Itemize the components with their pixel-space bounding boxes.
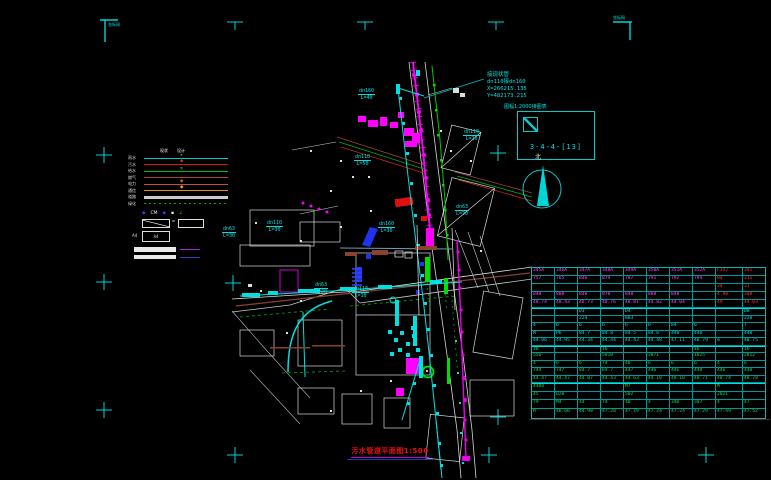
table-cell [601, 384, 624, 391]
table-cell: 44.04 [670, 300, 693, 307]
table-cell: 84.5 [624, 331, 647, 338]
table-cell: 2812 [743, 353, 765, 359]
table-cell [578, 347, 601, 352]
frame-note-top-right: 坐标网 [613, 15, 625, 21]
legend-blue-line [180, 257, 200, 258]
table-cell: 6 [647, 361, 670, 367]
legend-item-line [144, 177, 228, 178]
table-underline [529, 419, 770, 420]
title-block[interactable]: 污水管道平面图1:500 [340, 446, 440, 460]
table-cell: 446 [670, 368, 693, 374]
table-cell: 47.28 [601, 409, 624, 418]
table-cell: 350A [647, 268, 670, 275]
table-cell: 888 [647, 292, 670, 299]
table-row: 48.7448.4348.7348.7648.8144.8244.044944.… [532, 300, 765, 308]
table-row: 345A346A347A348A349A350A351A352AF342341 [532, 268, 765, 276]
table-cell: 352A [693, 268, 716, 275]
sheet-caption: 图幅1:2000接图表 [504, 103, 547, 110]
table-cell: 387 [693, 400, 716, 408]
table-cell [693, 300, 716, 307]
table-cell: 6 [647, 323, 670, 330]
table-cell: 48.43 [555, 300, 578, 307]
table-cell: M4 [555, 400, 578, 408]
table-cell: 348A [601, 268, 624, 275]
pipe-label-dn110-20[interactable]: dn110 L=20 [463, 129, 480, 142]
legend-headers: 现状 设计 [128, 147, 228, 155]
table-cell: M7 [624, 384, 647, 391]
table-row: 5565810387118252812 [532, 353, 765, 360]
table-cell: 7 [743, 323, 765, 330]
pipe-label-dn110-50[interactable]: dn110 L=50 [354, 154, 371, 167]
table-cell: 40 [624, 361, 647, 367]
table-cell [716, 309, 743, 315]
legend-symbol: ∠ [179, 211, 183, 216]
table-cell: 3871 [647, 353, 670, 359]
table-cell: 6 [578, 323, 601, 330]
table-cell: 4 [716, 361, 743, 367]
table-cell: 787 [624, 276, 647, 283]
table-cell [532, 316, 555, 323]
table-cell: 48.74 [532, 300, 555, 307]
legend-a-block: A4 A4 [128, 231, 228, 243]
table-cell: 848 [624, 292, 647, 299]
legend-a-note: A4 [132, 233, 137, 238]
table-cell: 744 [532, 368, 555, 374]
table-cell: 747 [555, 368, 578, 374]
table-row: 466744066646 [532, 361, 765, 368]
table-cell [716, 323, 743, 330]
legend-item-marker: ◆ [180, 160, 183, 164]
table-cell [578, 392, 601, 400]
table-cell: F342 [716, 268, 743, 275]
table-cell: 4 [647, 400, 670, 408]
table-cell: 224 [578, 316, 601, 323]
table-cell [670, 284, 693, 291]
table-cell: 48.76 [601, 300, 624, 307]
table-cell [601, 392, 624, 400]
table-cell: 6 [601, 323, 624, 330]
legend-item-label: 给水 [128, 168, 144, 174]
table-cell [670, 347, 693, 352]
legend-item-line: ◆ [144, 184, 228, 185]
table-cell: 6 [624, 323, 647, 330]
table-cell [601, 284, 624, 291]
table-cell: D4 [624, 309, 647, 315]
table-cell: 47.49 [716, 409, 743, 418]
table-cell [578, 353, 601, 359]
title-underline-magenta [351, 457, 429, 458]
table-cell: 44.63 [624, 376, 647, 382]
table-cell: 84 [716, 276, 743, 283]
table-cell [624, 353, 647, 359]
table-cell: 2021 [716, 392, 743, 400]
table-cell: 341 [743, 268, 765, 275]
legend-equals-sign: = [172, 219, 175, 225]
table-cell: 44.47 [555, 376, 578, 382]
table-cell [555, 347, 578, 352]
table-row: 4666668467 [532, 323, 765, 331]
table-cell [693, 292, 716, 299]
map-specks [248, 88, 482, 412]
table-cell: M [532, 331, 555, 338]
legend-item-marker: ◆ [180, 180, 183, 184]
annotation-line-2: dn110接dn160 [487, 79, 527, 86]
table-cell: 44.07 [578, 376, 601, 382]
table-row: M46.6644.9847.2847.1947.2447.2447.2947.4… [532, 409, 765, 418]
table-cell: 448 [693, 368, 716, 374]
cad-canvas[interactable]: 坐标网 坐标网 现状 设计 雨水◂污水◆给水◂燃气电力◆通信◆道路绿化 ◆CM◆… [0, 0, 771, 480]
table-row: MP684.784.884.584.6448448448 [532, 331, 765, 339]
table-row: 79M44474404340387447 [532, 400, 765, 409]
table-cell [624, 347, 647, 352]
table-row: 16161616 [532, 346, 765, 353]
legend-a-box: A4 [142, 231, 170, 242]
table-cell [693, 309, 716, 315]
table-cell: 446 [716, 368, 743, 374]
table-cell [693, 316, 716, 323]
table-cell: 6 [555, 361, 578, 367]
table-cell [743, 392, 765, 400]
table-cell: 4 [532, 323, 555, 330]
legend-item-line: ◂ [144, 171, 228, 172]
table-cell: 349A [624, 268, 647, 275]
table-cell: 348 [743, 292, 765, 299]
table-cell: 44 [578, 400, 601, 408]
table-cell: 878 [601, 292, 624, 299]
table-row: 3421 [532, 284, 765, 292]
table-cell: 48.79 [693, 338, 716, 345]
table-cell: 4 [716, 400, 743, 408]
legend-item-marker: ◆ [180, 186, 183, 190]
table-cell: 211 [743, 276, 765, 283]
table-cell: 47.29 [693, 409, 716, 418]
table-cell: 502 [624, 392, 647, 400]
legend-item-label: 通信 [128, 188, 144, 194]
table-cell: 16 [693, 347, 716, 352]
table-row: 45D205022021 [532, 392, 765, 401]
legend-symbol: ◆ [142, 211, 145, 216]
table-cell: 792 [670, 276, 693, 283]
table-cell: D20 [555, 392, 578, 400]
table-cell: D3 [578, 309, 601, 315]
table-cell: 45 [532, 392, 555, 400]
table-cell: 848 [532, 292, 555, 299]
legend-item-marker: ◂ [180, 167, 182, 171]
table-cell: 16 [601, 347, 624, 352]
table-cell: 44.03 [743, 300, 765, 307]
table-cell [532, 284, 555, 291]
table-cell: 21 [743, 284, 765, 291]
pipe-label-dn63-20-a[interactable]: dn63 L=20 [314, 282, 328, 295]
table-cell: 48.73 [578, 300, 601, 307]
table-row: 4488M7M [532, 383, 765, 392]
north-arrow [523, 165, 561, 208]
table-row: 8488888488788488888484.98348 [532, 292, 765, 300]
table-cell: 47.52 [743, 409, 765, 418]
table-cell: 791 [647, 276, 670, 283]
table-cell: 556 [532, 353, 555, 359]
table-cell: 6 [670, 361, 693, 367]
table-cell: M [532, 409, 555, 418]
table-cell: 47.24 [647, 409, 670, 418]
legend-symbol: ▪ [171, 211, 174, 216]
table-cell: 446 [647, 368, 670, 374]
legend-symbol: ◆ [163, 211, 166, 216]
table-cell: 84.7 [578, 368, 601, 374]
table-cell [670, 392, 693, 400]
table-cell: 47.11 [670, 338, 693, 345]
table-cell: 16 [532, 347, 555, 352]
table-cell [555, 316, 578, 323]
table-cell: 74 [601, 400, 624, 408]
drawing-title: 污水管道平面图1:500 [340, 446, 440, 456]
table-cell: 48.71 [693, 376, 716, 382]
table-cell [647, 384, 670, 391]
legend-item-label: 污水 [128, 162, 144, 168]
table-cell [693, 392, 716, 400]
table-cell [693, 384, 716, 391]
legend-item-line [144, 196, 228, 199]
legend-item-line: ◆ [144, 190, 228, 191]
table-cell: 879 [601, 276, 624, 283]
table-cell: 44.48 [647, 338, 670, 345]
table-cell: 6 [578, 361, 601, 367]
legend-header-existing: 现状 [160, 148, 168, 154]
table-row: 44.4744.4744.0744.4344.6344.1048.1048.71… [532, 376, 765, 383]
table-row: 224883228 [532, 316, 765, 324]
table-cell [693, 284, 716, 291]
table-cell: 79 [532, 400, 555, 408]
table-cell [555, 284, 578, 291]
table-cell: 888 [555, 292, 578, 299]
table-cell [647, 284, 670, 291]
table-cell: 48.75 [743, 338, 765, 345]
well-data-table[interactable]: 345A346A347A348A349A350A351A352AF3423417… [531, 267, 766, 419]
table-row: 74474784.784.7447446446448446448 [532, 368, 765, 375]
legend-bars [128, 247, 228, 265]
table-cell: 6 [743, 361, 765, 367]
legend-item-label: 道路 [128, 194, 144, 200]
legend-symbol: CM [150, 211, 157, 216]
table-cell: 794 [693, 276, 716, 283]
sheet-index-box[interactable]: 3-4-4-[13] [517, 111, 595, 160]
table-cell: 44.82 [647, 300, 670, 307]
table-cell: 347A [578, 268, 601, 275]
table-cell [647, 316, 670, 323]
table-cell: 228 [743, 316, 765, 323]
table-cell: 44.95 [555, 338, 578, 345]
table-cell: 44.44 [601, 338, 624, 345]
table-cell [647, 309, 670, 315]
sheet-number: 3-4-4-[13] [518, 143, 594, 151]
table-cell: 48.78 [743, 376, 765, 382]
table-row: 44.0644.9544.3444.4444.4344.4847.1148.79… [532, 338, 765, 346]
table-cell: 6 [555, 323, 578, 330]
table-cell: 345A [532, 268, 555, 275]
table-cell: 84 [670, 323, 693, 330]
annotation-line-4: Y=482173.215 [487, 93, 527, 100]
table-cell: 49 [716, 300, 743, 307]
annotation-line-3: X=266215.135 [487, 86, 527, 93]
legend-item-label: 绿化 [128, 201, 144, 207]
legend-line-items: 雨水◂污水◆给水◂燃气电力◆通信◆道路绿化 [128, 155, 228, 207]
table-cell: 47.24 [670, 409, 693, 418]
table-cell: 6 [693, 361, 716, 367]
table-cell [578, 384, 601, 391]
table-cell: 757 [532, 276, 555, 283]
legend-item-line: ◂ [144, 158, 228, 159]
table-cell: 448 [743, 368, 765, 374]
table-cell [670, 353, 693, 359]
table-cell: 16 [743, 347, 765, 352]
pipe-label-dn160-40[interactable]: dn160 L=40 [358, 88, 375, 101]
table-cell: 6 [693, 323, 716, 330]
legend-item-line: ◆ [144, 164, 228, 165]
table-cell: 84.7 [578, 331, 601, 338]
legend-blocks: = [128, 219, 228, 229]
table-cell: 5810 [601, 353, 624, 359]
table-cell: 44.47 [532, 376, 555, 382]
table-cell [716, 347, 743, 352]
pipe-label-dn110-10[interactable]: dn110 L=10 [352, 286, 369, 299]
table-row: 75776584687978779179279484211 [532, 276, 765, 284]
table-cell: 448 [693, 331, 716, 338]
pipe-label-dn63-30[interactable]: dn63 L=30 [222, 226, 236, 239]
table-cell: 34 [716, 284, 743, 291]
legend-item-line [144, 203, 228, 204]
table-cell: 84.7 [601, 368, 624, 374]
table-cell: 44.34 [578, 338, 601, 345]
table-cell [716, 353, 743, 359]
legend-bar-2 [134, 255, 176, 259]
table-cell: 44.43 [601, 376, 624, 382]
legend-line-item[interactable]: 绿化 [128, 201, 228, 208]
table-cell: 44.06 [532, 338, 555, 345]
table-cell [716, 316, 743, 323]
legend-item-label: 电力 [128, 181, 144, 187]
legend-purple-line [180, 249, 200, 250]
table-cell: 883 [624, 316, 647, 323]
table-cell: 4.98 [716, 292, 743, 299]
table-cell [555, 384, 578, 391]
table-cell: 448 [670, 331, 693, 338]
table-cell: 848 [670, 292, 693, 299]
table-cell: 46.66 [555, 409, 578, 418]
legend-empty-box [178, 219, 204, 228]
frame-note-top-left: 坐标网 [108, 22, 120, 28]
table-cell: 448 [743, 331, 765, 338]
table-cell: M [716, 384, 743, 391]
pipe-label-dn160-30[interactable]: dn160 L=30 [378, 221, 395, 234]
legend[interactable]: 现状 设计 雨水◂污水◆给水◂燃气电力◆通信◆道路绿化 ◆CM◆▪∠ = A4 … [128, 147, 228, 265]
table-cell [743, 384, 765, 391]
table-cell: 74 [601, 361, 624, 367]
sewer-main-magenta [280, 62, 470, 461]
table-cell [670, 384, 693, 391]
table-cell: 351A [670, 268, 693, 275]
table-cell: 1825 [693, 353, 716, 359]
table-cell: 47 [743, 400, 765, 408]
table-cell: 765 [555, 276, 578, 283]
table-cell: m [716, 338, 743, 345]
table-cell [555, 353, 578, 359]
table-cell [670, 316, 693, 323]
table-cell [601, 309, 624, 315]
pipe-label-dn110-30[interactable]: dn110 L=30 [266, 220, 283, 233]
table-cell [647, 347, 670, 352]
table-cell: 48.74 [716, 376, 743, 382]
table-cell: D8 [743, 309, 765, 315]
table-cell: 48.81 [624, 300, 647, 307]
table-cell [601, 316, 624, 323]
table-cell: 848 [578, 292, 601, 299]
table-cell: 84.6 [647, 331, 670, 338]
legend-item-label: 燃气 [128, 175, 144, 181]
table-cell: 40 [624, 400, 647, 408]
table-cell [624, 284, 647, 291]
title-underline-blue [347, 459, 433, 460]
table-cell [578, 284, 601, 291]
table-cell: 346A [555, 268, 578, 275]
legend-bar-1 [134, 247, 176, 252]
legend-item-label: 雨水 [128, 155, 144, 161]
table-cell [555, 309, 578, 315]
table-cell: 44.43 [624, 338, 647, 345]
table-cell: 4488 [532, 384, 555, 391]
pipe-label-dn63-20-b[interactable]: dn63 L=20 [455, 204, 469, 217]
table-cell [670, 309, 693, 315]
table-cell: 4 [532, 361, 555, 367]
annotation-line-1: 接现状管 [487, 72, 527, 79]
table-cell: 47.19 [624, 409, 647, 418]
table-cell: 44.98 [578, 409, 601, 418]
table-cell [647, 392, 670, 400]
legend-hatched-box [142, 219, 170, 228]
table-cell: 340 [670, 400, 693, 408]
table-cell: 447 [624, 368, 647, 374]
table-cell: 846 [578, 276, 601, 283]
legend-symbols: ◆CM◆▪∠ [142, 210, 228, 217]
north-label: 北 [535, 152, 541, 161]
table-cell: 48.10 [670, 376, 693, 382]
sheet-hatch-icon [523, 117, 538, 132]
table-cell: P6 [555, 331, 578, 338]
table-cell [532, 309, 555, 315]
connection-annotation[interactable]: 接现状管 dn110接dn160 X=266215.135 Y=482173.2… [487, 72, 527, 100]
table-cell [716, 331, 743, 338]
table-cell: 44.10 [647, 376, 670, 382]
table-row: D3D4D8 [532, 308, 765, 316]
legend-item-marker: ◂ [180, 154, 182, 158]
table-cell: 84.8 [601, 331, 624, 338]
